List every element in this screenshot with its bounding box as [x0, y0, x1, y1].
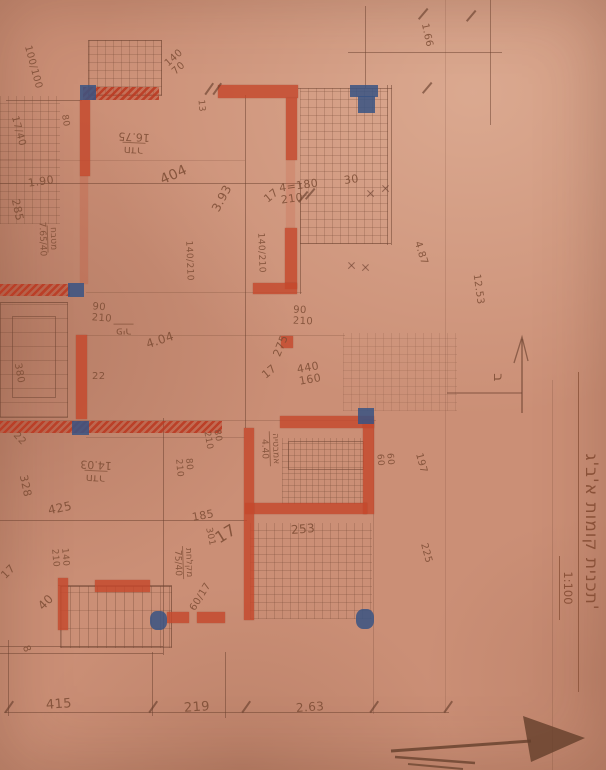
opening-size-label: 80 210 [173, 458, 194, 478]
direction-arrow [383, 710, 606, 770]
opening-size-label: 140 210 [49, 548, 70, 568]
room-name: אמבטיה [268, 431, 281, 466]
room-name: חדר [83, 470, 107, 485]
room-label: אמבטיה 4.40 [258, 431, 281, 467]
wall-segment [197, 612, 225, 623]
room-label: פיר [114, 324, 134, 338]
column-marker [358, 96, 375, 113]
dimension-label: 12.53 [470, 273, 485, 305]
dimension-label: 197 [412, 452, 428, 474]
room-area: 75/40 [171, 546, 183, 580]
pencil-line [225, 652, 226, 718]
room-area: 16.75 [118, 129, 150, 143]
opening-size-label: 140 70 [163, 48, 193, 78]
pencil-line [365, 6, 366, 88]
cross-mark [361, 263, 370, 272]
dimension-label: 3.93 [210, 183, 235, 214]
dimension-label: 4.04 [145, 330, 176, 351]
opening-size-label: 60 60 [374, 453, 394, 467]
dimension-label: 80 [58, 114, 70, 128]
wall-thickness-label: 17 [260, 363, 279, 382]
dimension-label: 415 [46, 697, 73, 713]
wall-segment [218, 85, 298, 98]
column-marker [72, 421, 89, 435]
opening-size-label: 100/100 [21, 45, 43, 91]
wall-segment [167, 612, 189, 623]
bathtub-outline [288, 441, 364, 470]
cross-mark [381, 184, 390, 193]
cross-mark [347, 261, 356, 270]
opening-size-label: 440 160 [296, 360, 322, 387]
dimension-label: 22 [92, 372, 106, 383]
wall-segment [245, 503, 367, 514]
dimension-label: 22 [10, 431, 27, 448]
room-name: פיר [114, 324, 134, 338]
wall-segment [80, 176, 88, 284]
wall-segment [244, 428, 254, 620]
column-marker [356, 609, 374, 629]
hatch-area-lower-terrace [250, 523, 372, 619]
north-label: ב [490, 373, 505, 382]
wall-segment [253, 283, 297, 294]
dimension-label: 225 [417, 542, 433, 564]
pencil-line [490, 0, 491, 125]
dimension-label: 1.66 [418, 23, 434, 49]
wall-segment [0, 284, 70, 296]
wall-segment [286, 98, 297, 160]
dimension-label: 219 [184, 700, 211, 716]
dimension-label: 4.87 [411, 240, 429, 266]
wall-segment [285, 228, 297, 289]
room-name: מקלחת [182, 546, 195, 580]
wall-segment [58, 578, 68, 630]
dimension-label: 185 [191, 508, 215, 524]
room-label: חדר 16.75 [117, 129, 150, 157]
room-area: 7.65/40 [36, 222, 48, 257]
wall-segment [0, 421, 222, 433]
scale-label: 1:100 [559, 556, 575, 620]
floor-plan-sheet: חדר 16.75 חדר 14.03 פיר מטבח 7.65/40 אמב… [0, 0, 606, 770]
stairwell-inner-outline [12, 316, 56, 398]
room-label: מקלחת 75/40 [171, 546, 194, 580]
dimension-label: 328 [17, 474, 33, 498]
tick-mark [466, 10, 476, 22]
cross-mark [366, 189, 375, 198]
room-name: מטבח [46, 225, 58, 252]
room-label: חדר 14.03 [79, 457, 112, 485]
dimension-label: 30 [343, 173, 359, 187]
drawing-title: תכנית קומות א'ב'ג' [578, 372, 601, 692]
dimension-label: 425 [47, 500, 73, 518]
wall-segment [80, 100, 90, 176]
room-name: חדר [121, 142, 145, 157]
opening-size-label: 60/17 [189, 581, 214, 613]
opening-size-label: 90 210 [293, 306, 314, 328]
dimension-label: 2.63 [296, 700, 325, 715]
dimension-label: 404 [158, 163, 190, 188]
column-marker [150, 611, 167, 630]
opening-size-label: 140/210 [183, 241, 194, 282]
room-area: 14.03 [80, 457, 112, 471]
column-marker [68, 283, 84, 297]
tick-mark [418, 8, 428, 20]
pencil-line [245, 95, 246, 428]
column-marker [358, 408, 374, 424]
pencil-line [391, 85, 392, 245]
wall-thickness-label: 17 [262, 187, 281, 206]
opening-size-label: 80 210 [201, 429, 223, 450]
opening-size-label: 140/210 [255, 233, 266, 274]
dimension-label: 13 [195, 99, 206, 112]
pencil-line [348, 52, 502, 53]
north-arrow [438, 325, 538, 420]
column-marker [80, 85, 96, 100]
opening-size-label: 90 210 [91, 302, 113, 325]
dimension-label: 253 [290, 522, 315, 537]
tick-mark [422, 82, 432, 94]
room-label: מטבח 7.65/40 [36, 221, 59, 256]
wall-segment [76, 335, 87, 419]
wall-thickness-label: 17 [0, 563, 18, 582]
dimension-label: 40 [36, 592, 57, 613]
wall-segment [363, 420, 374, 514]
wall-segment [95, 580, 150, 592]
dimension-label: 380 [11, 362, 25, 384]
